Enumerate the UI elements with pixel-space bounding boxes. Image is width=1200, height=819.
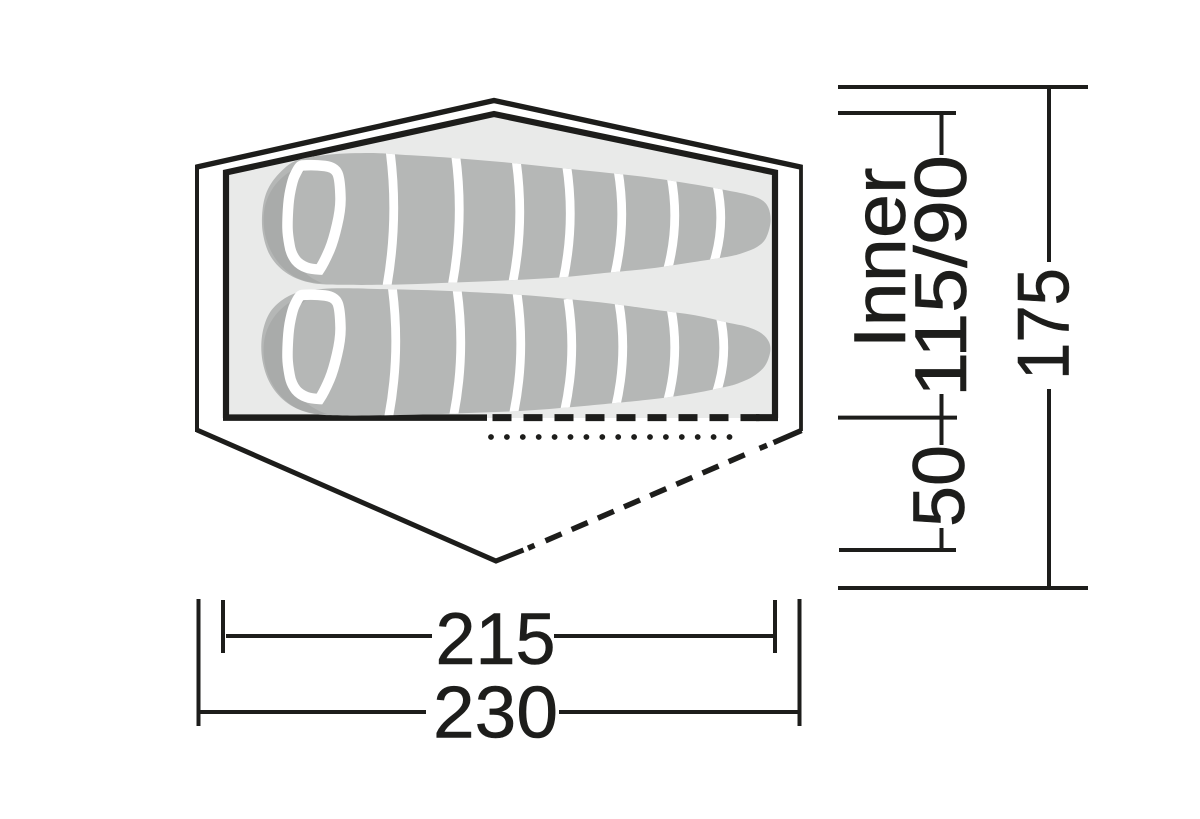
svg-text:230: 230: [433, 671, 558, 754]
svg-text:215: 215: [436, 597, 556, 680]
svg-text:50: 50: [897, 445, 980, 527]
svg-text:175: 175: [1002, 268, 1085, 380]
svg-text:115/90: 115/90: [899, 155, 982, 397]
